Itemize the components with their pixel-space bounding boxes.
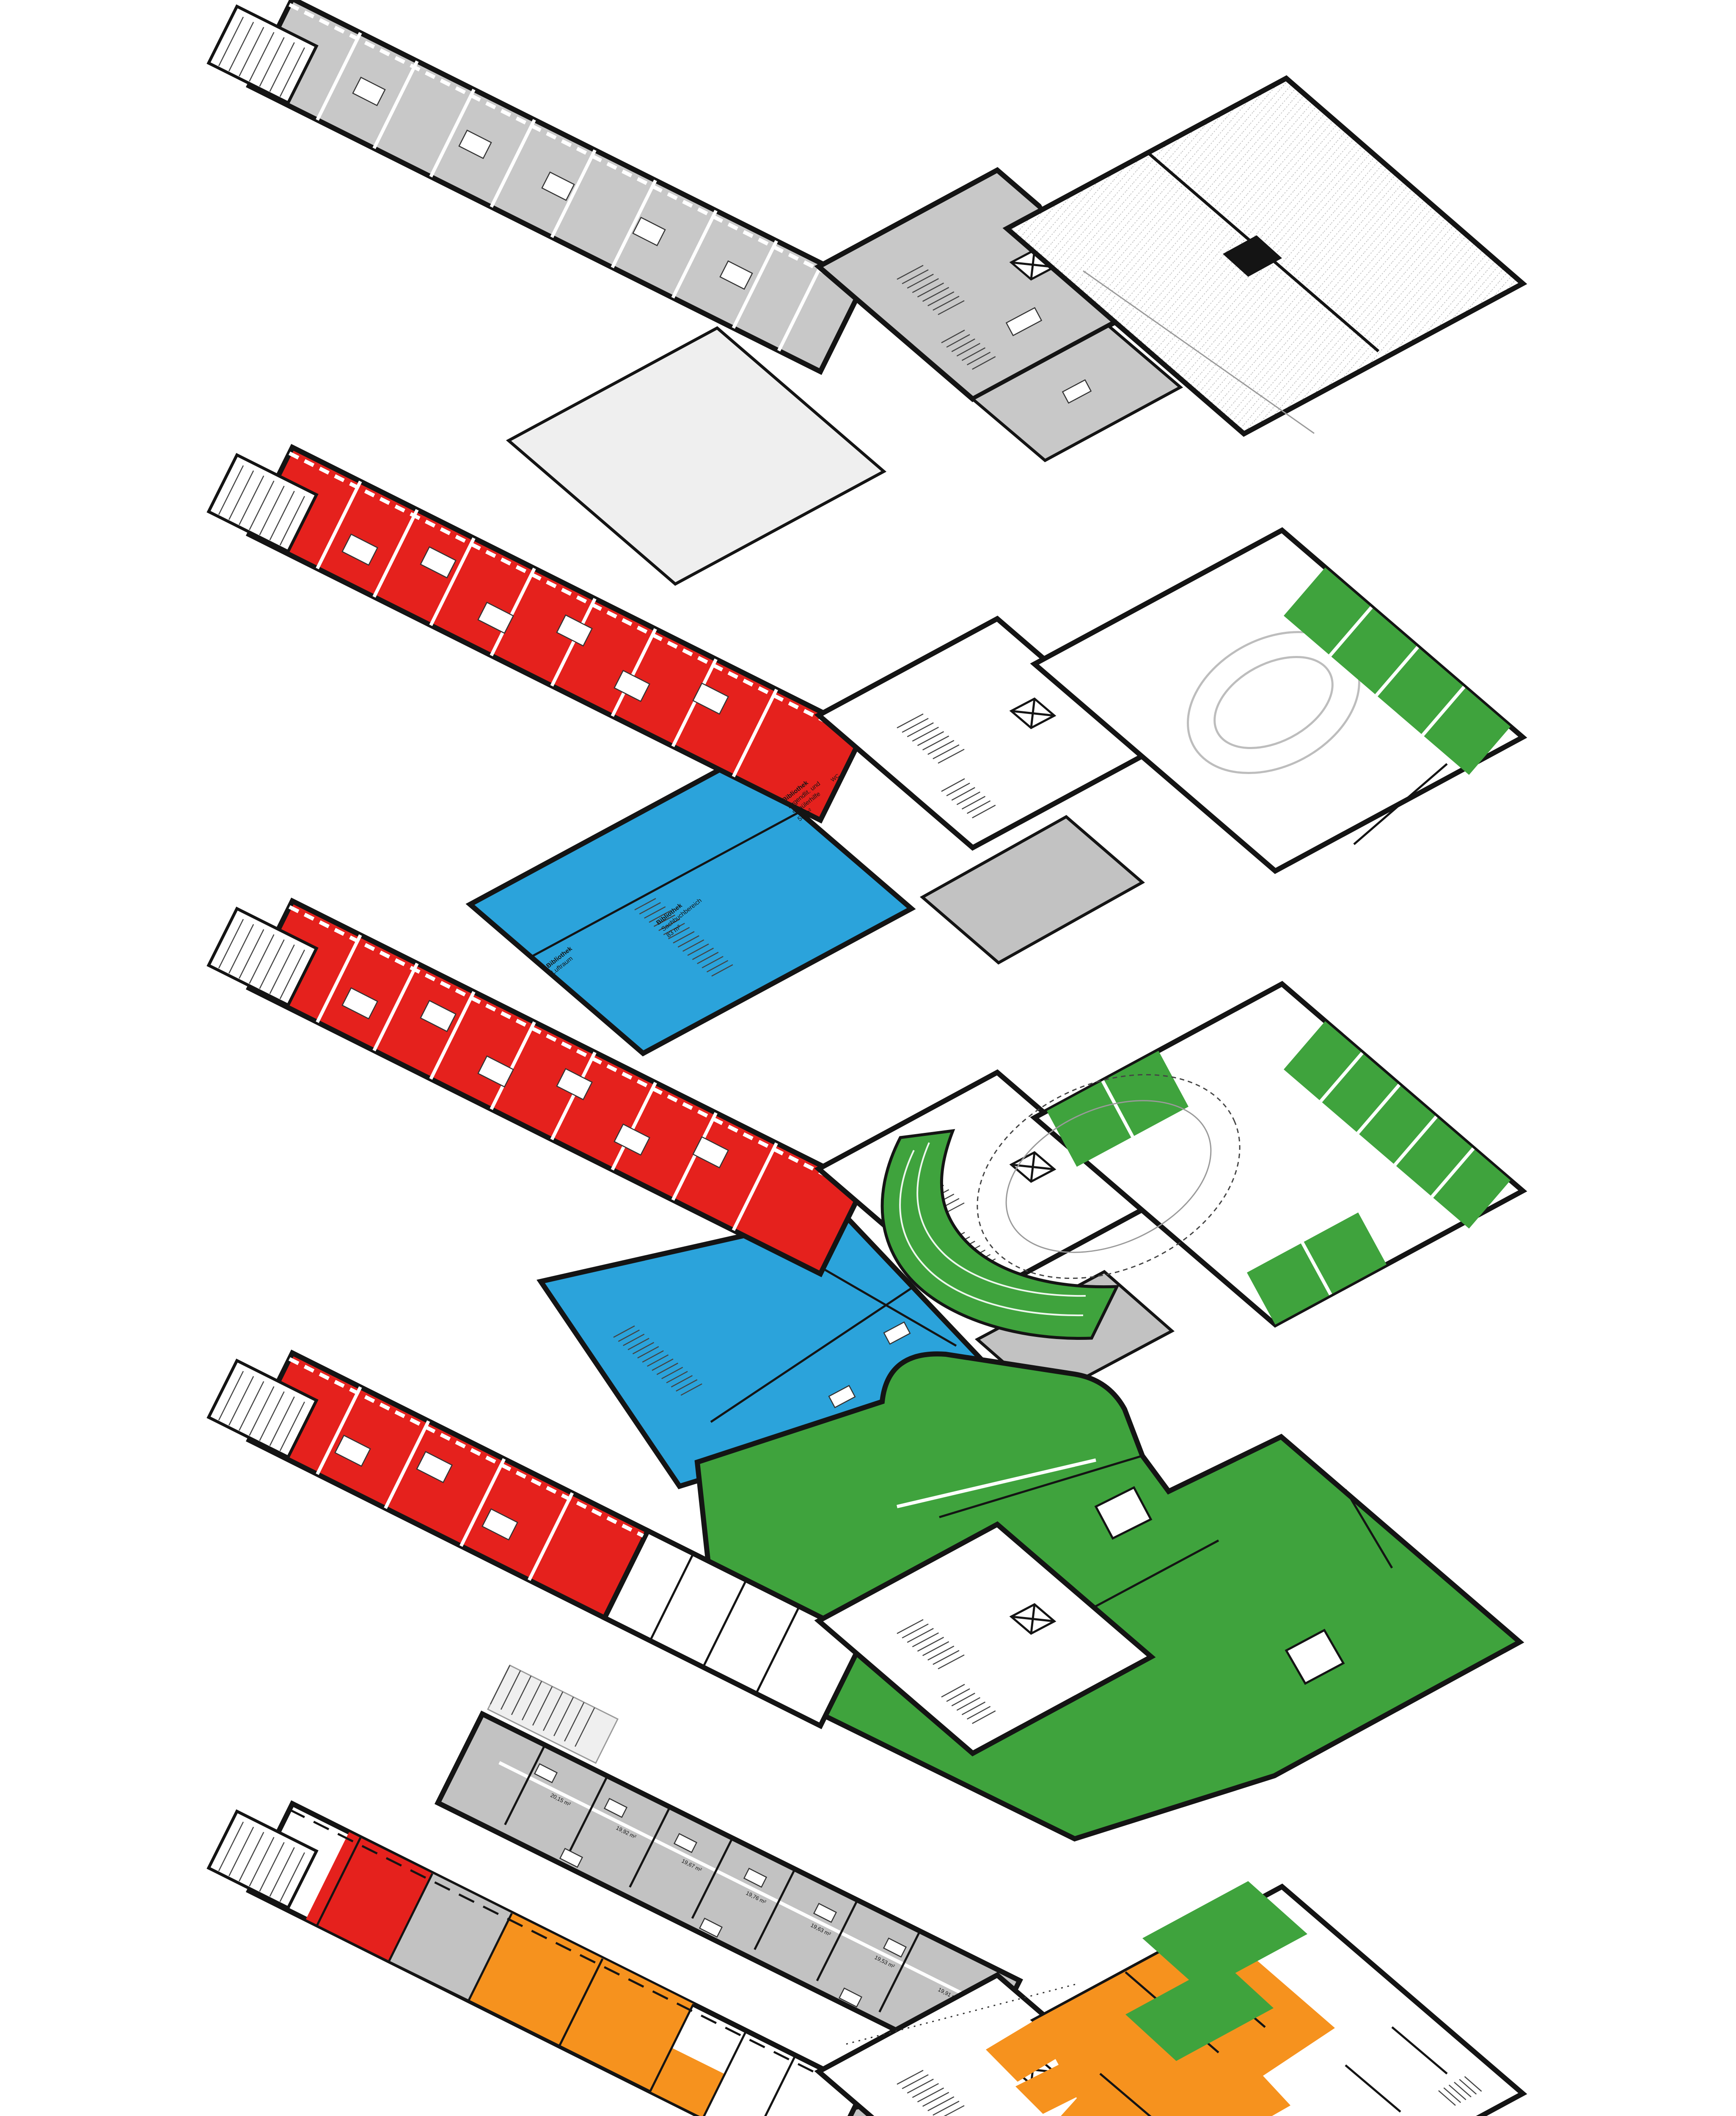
classroom-wing-red xyxy=(249,1353,648,1618)
level-1-plan xyxy=(209,0,1523,584)
service-rooms xyxy=(922,817,1142,963)
roof-terrace xyxy=(509,328,884,584)
level-3-plan xyxy=(209,901,1523,1486)
axonometric-floor-plan-stack: WC Bibliothek Jugendlit. und Schülerhilf… xyxy=(0,0,1736,2116)
foyer-and-hall xyxy=(697,1354,1520,1839)
diagram-svg: WC Bibliothek Jugendlit. und Schülerhilf… xyxy=(0,0,1736,2116)
